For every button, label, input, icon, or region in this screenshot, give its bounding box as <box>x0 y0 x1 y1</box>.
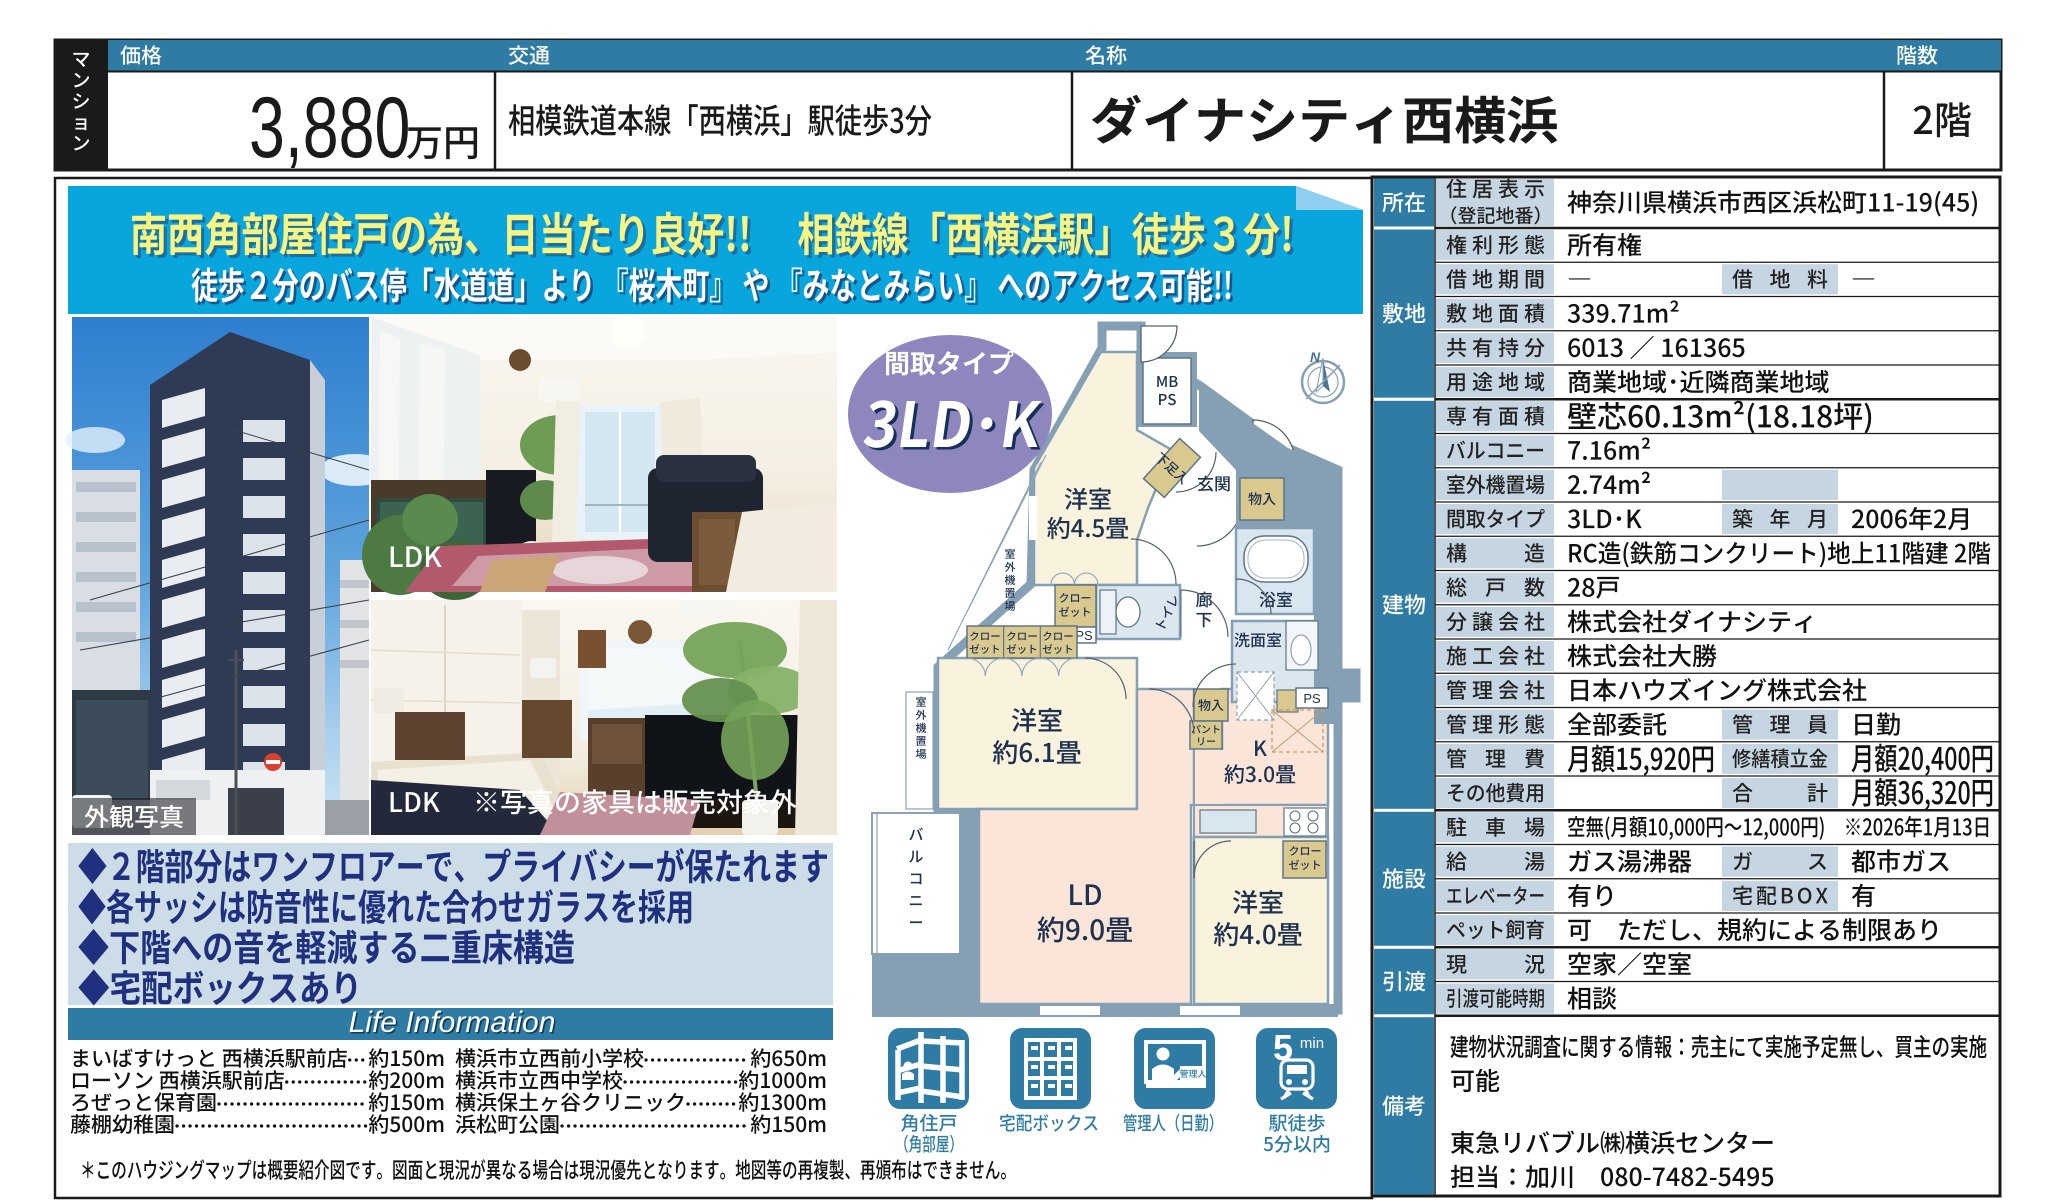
svg-text:3,880: 3,880 <box>249 80 410 176</box>
svg-text:Life Information: Life Information <box>349 1006 556 1039</box>
svg-text:PS: PS <box>1303 691 1321 706</box>
svg-text:min: min <box>1300 1035 1324 1052</box>
svg-text:PS: PS <box>1075 628 1093 643</box>
svg-text:N: N <box>1310 349 1321 365</box>
